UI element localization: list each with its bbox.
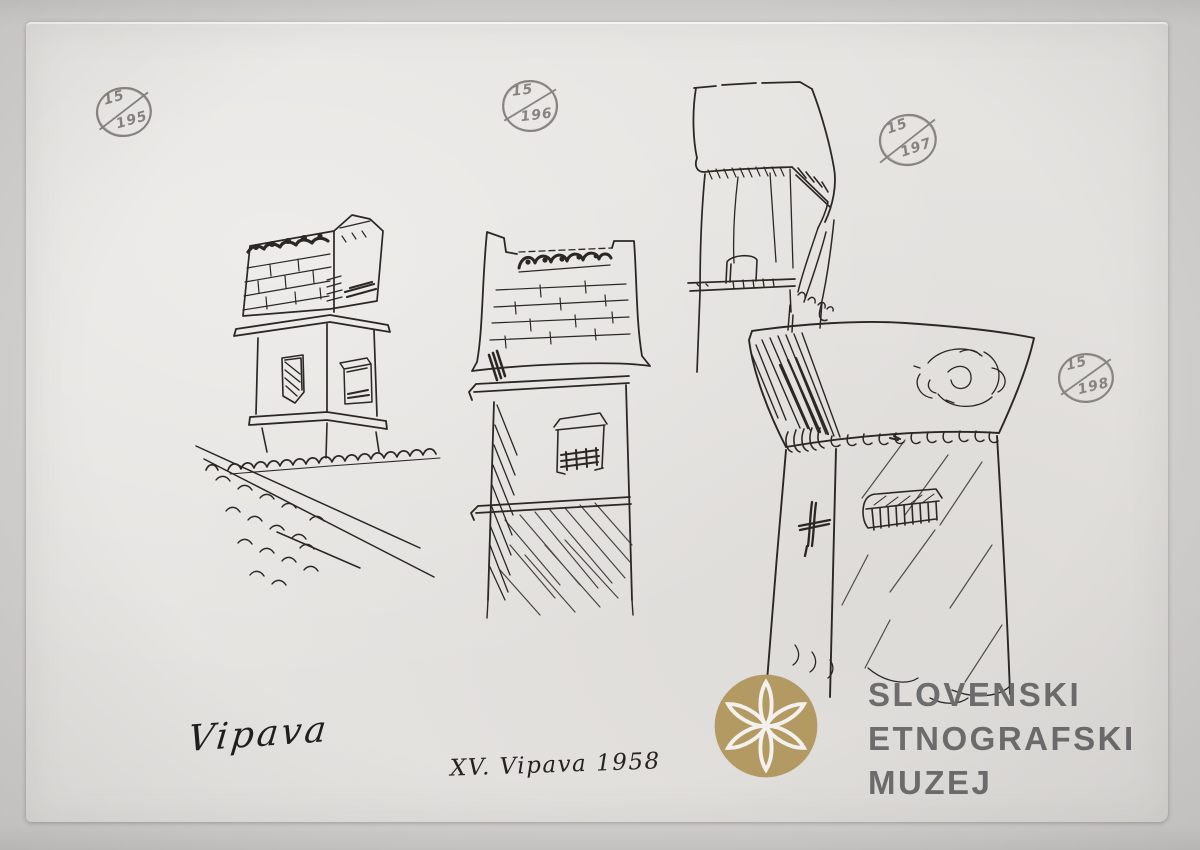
stamp-number-top: 15 [511, 81, 534, 99]
museum-rosette-icon [710, 670, 822, 782]
museum-logo-line-1: SLOVENSKI [868, 673, 1136, 717]
museum-logo-text: SLOVENSKI ETNOGRAFSKI MUZEJ [868, 673, 1136, 805]
museum-logo: SLOVENSKI ETNOGRAFSKI MUZEJ [710, 670, 1136, 805]
archive-number-stamp-1: 15 195 [85, 76, 164, 149]
museum-logo-line-2: ETNOGRAFSKI [868, 717, 1136, 761]
archive-number-stamp-3: 15 197 [867, 103, 948, 179]
museum-logo-line-3: MUZEJ [868, 761, 1136, 805]
archive-number-stamp-2: 15 196 [492, 72, 567, 142]
archive-number-stamp-4: 15 198 [1048, 344, 1124, 415]
scanned-drawing-sheet: 15 195 15 196 15 197 15 198 Vipava XV. V… [0, 0, 1200, 850]
